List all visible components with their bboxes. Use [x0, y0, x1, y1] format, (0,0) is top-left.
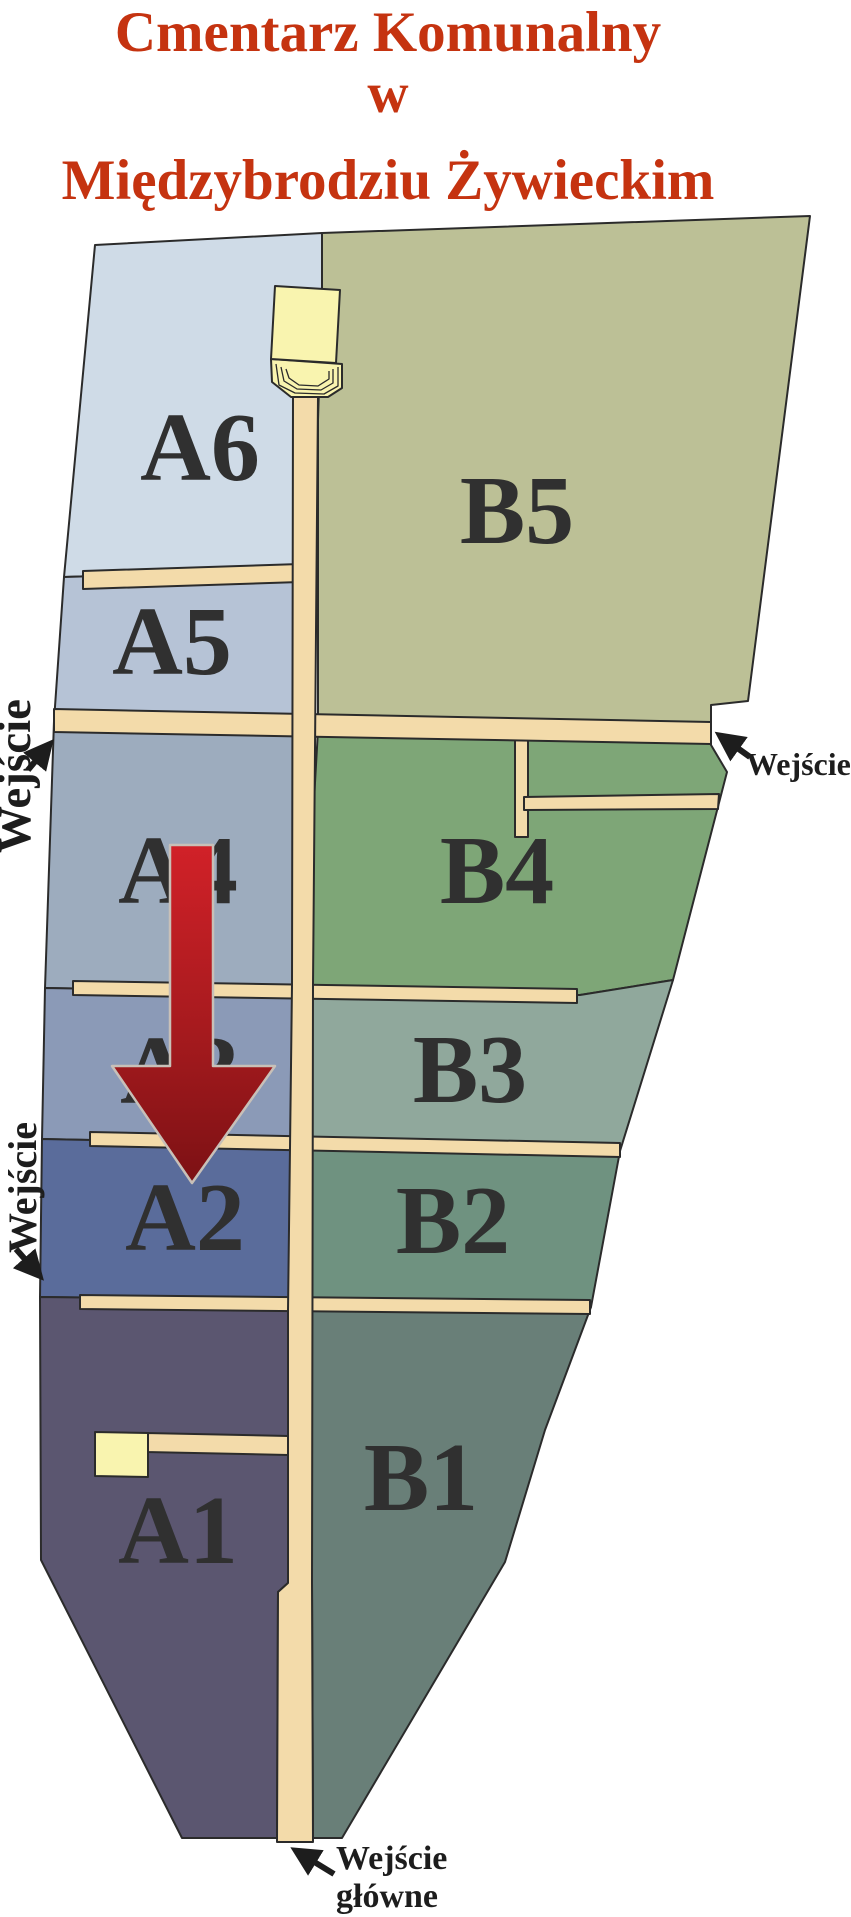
- entrance-main-label-line1: Wejście: [336, 1840, 447, 1877]
- walkway-b4-branch: [524, 794, 719, 810]
- map-title-line2: w: [367, 62, 408, 125]
- cemetery-map: Cmentarz Komunalny w Międzybrodziu Żywie…: [0, 0, 851, 1917]
- entrance-main: Wejście główne: [298, 1840, 447, 1915]
- cemetery-map-page: Cmentarz Komunalny w Międzybrodziu Żywie…: [0, 0, 851, 1917]
- small-building-a1: [95, 1432, 148, 1477]
- entrance-lower-left: Wejście: [0, 1122, 45, 1274]
- section-b5-label: B5: [460, 457, 574, 565]
- section-b1-area: [302, 1303, 591, 1838]
- entrance-main-label-line2: główne: [336, 1878, 438, 1915]
- chapel-building: [271, 286, 340, 363]
- entrance-right-label: Wejście: [746, 746, 851, 782]
- chapel: [271, 286, 342, 397]
- map-title-line3: Międzybrodziu Żywieckim: [62, 149, 715, 212]
- map-title-line1: Cmentarz Komunalny: [115, 1, 661, 64]
- section-a5-label: A5: [112, 588, 232, 696]
- section-b4-label: B4: [440, 817, 554, 925]
- entrance-upper-left-label: Wejście: [0, 699, 41, 853]
- section-b2-label: B2: [396, 1167, 510, 1275]
- section-b3-label: B3: [413, 1016, 527, 1124]
- entrance-right: Wejście: [722, 737, 851, 782]
- entrance-upper-left: Wejście: [0, 699, 48, 853]
- section-a6-label: A6: [140, 394, 260, 502]
- section-a2-label: A2: [125, 1164, 245, 1272]
- section-a1-label: A1: [118, 1477, 238, 1585]
- entrance-lower-left-label: Wejście: [0, 1122, 45, 1253]
- entrance-main-arrow-icon: [298, 1852, 334, 1874]
- walkway-a1-branch: [146, 1433, 288, 1455]
- section-b1-label: B1: [364, 1424, 478, 1532]
